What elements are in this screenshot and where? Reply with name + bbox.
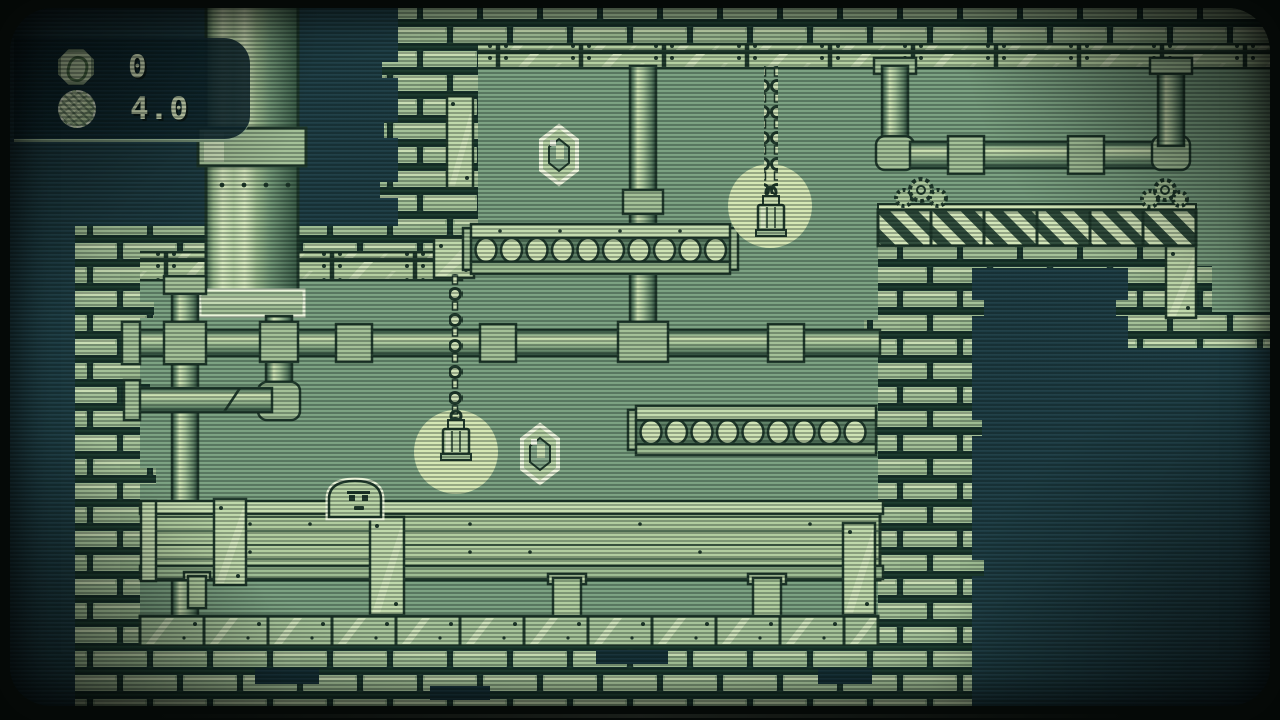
right-wall (878, 266, 972, 706)
pipe-coupling (336, 324, 372, 362)
left-wall (75, 226, 140, 706)
pipe-cross-junction (164, 322, 206, 364)
crt-frame: 0 4.0 (0, 0, 1280, 720)
coin-counter: 0 (58, 46, 250, 88)
game-screen[interactable]: 0 4.0 (0, 0, 1280, 720)
pipe-coupling (1068, 136, 1104, 174)
bomb-timer-value: 4.0 (130, 94, 189, 125)
chain (449, 274, 463, 422)
hazard-bridge (878, 204, 1196, 246)
gem (522, 425, 558, 483)
bomb-icon (58, 90, 96, 128)
hud-panel: 0 4.0 (14, 38, 250, 142)
ceiling-bricks (398, 8, 1280, 46)
floor-tiles (140, 616, 878, 646)
pipe-elbow (876, 136, 914, 170)
floor (75, 616, 972, 706)
coin-icon (58, 49, 94, 85)
pipe-coupling (948, 136, 984, 174)
bomb-timer: 4.0 (58, 88, 250, 130)
pipe-horizontal-low (132, 388, 272, 412)
roller-platform-upper (463, 224, 738, 274)
gem (541, 126, 577, 184)
pipe-coupling (480, 324, 516, 362)
pipe-coupling (768, 324, 804, 362)
right-wall-cap (878, 246, 1196, 268)
roller-platform-lower (628, 406, 876, 455)
chain (764, 66, 778, 194)
coin-count-value: 0 (128, 52, 148, 83)
pipe-t-junction (618, 322, 668, 362)
coin-icon-mark (64, 54, 91, 84)
player-slime (329, 481, 381, 517)
